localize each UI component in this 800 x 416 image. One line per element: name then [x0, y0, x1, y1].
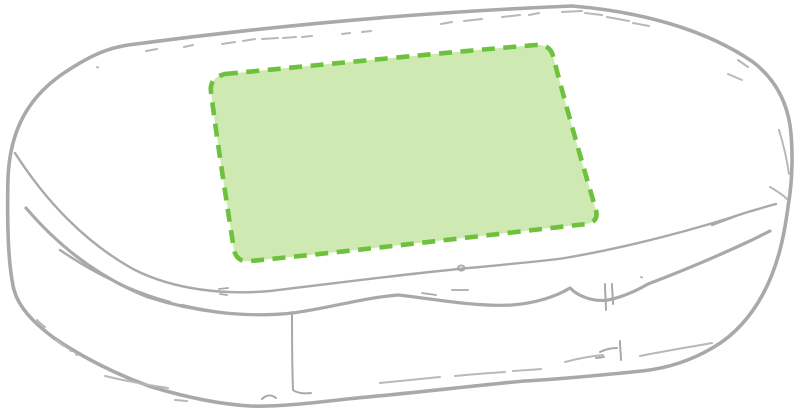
pillbox-sketch-svg: [0, 0, 800, 416]
pillbox-print-area-illustration: [0, 0, 800, 416]
base-hinge-vertical-line: [262, 312, 311, 399]
thumb-notch-ticks: [596, 284, 621, 360]
left-edge-hatch-marks: [37, 320, 77, 355]
print-area-highlight[interactable]: [211, 45, 597, 261]
right-edge-hatch-marks: [728, 60, 789, 199]
print-area-outline[interactable]: [211, 45, 597, 261]
